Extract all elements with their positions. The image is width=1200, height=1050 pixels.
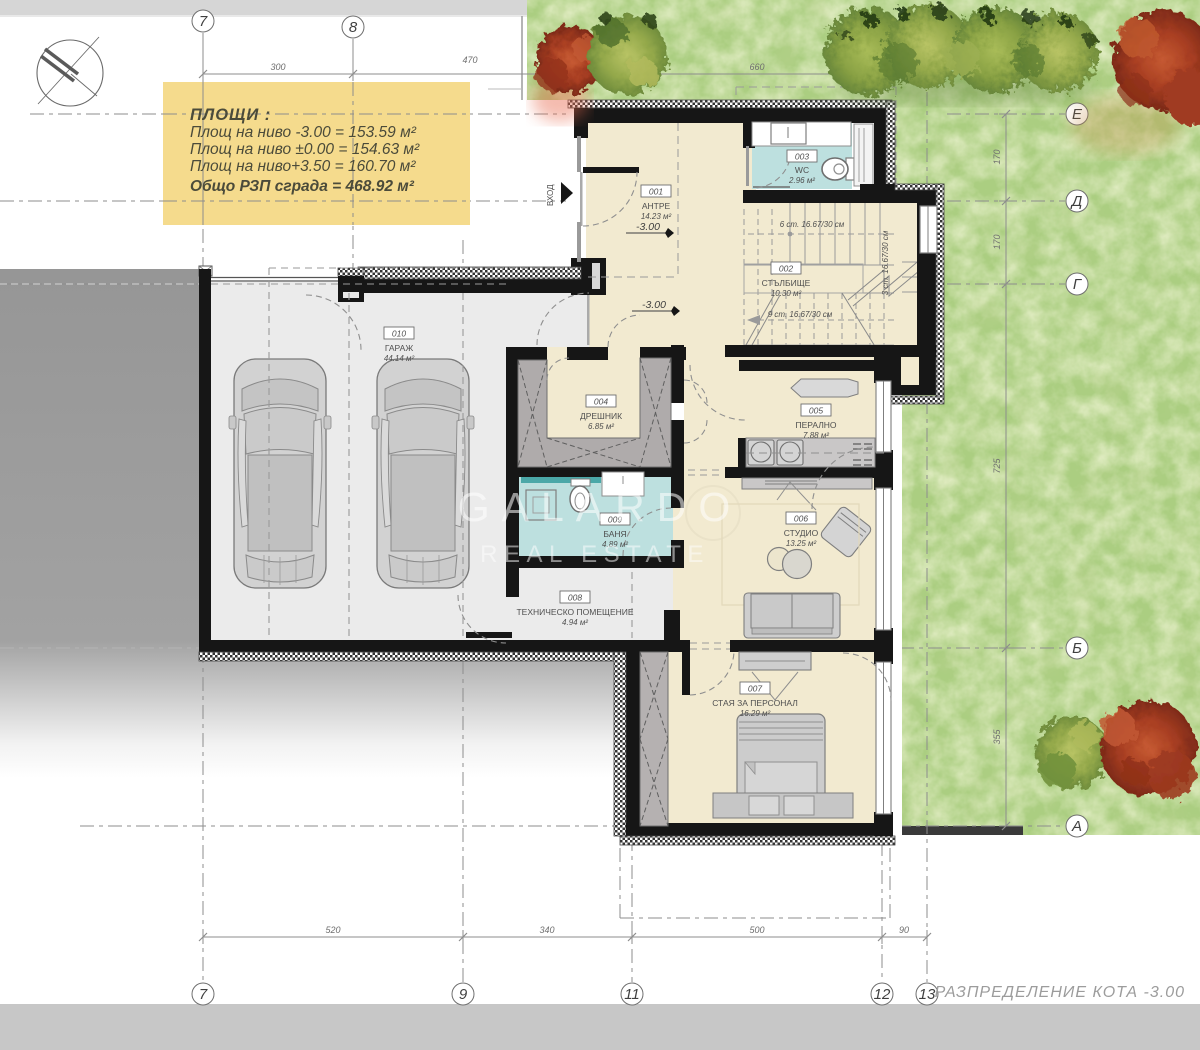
svg-text:13.25 м²: 13.25 м² <box>786 539 817 548</box>
svg-text:7: 7 <box>199 13 208 30</box>
svg-text:005: 005 <box>809 406 823 416</box>
svg-text:007: 007 <box>748 684 762 694</box>
svg-text:А: А <box>1071 818 1082 835</box>
svg-text:500: 500 <box>749 925 764 935</box>
svg-text:010: 010 <box>392 329 406 339</box>
svg-text:ТЕХНИЧЕСКО ПОМЕЩЕНИЕ: ТЕХНИЧЕСКО ПОМЕЩЕНИЕ <box>516 607 633 617</box>
svg-text:660: 660 <box>749 62 764 72</box>
svg-text:12: 12 <box>874 986 891 1003</box>
svg-text:Б: Б <box>1072 640 1082 657</box>
svg-text:ПЛОЩИ :: ПЛОЩИ : <box>190 106 271 124</box>
svg-text:13: 13 <box>919 986 936 1003</box>
svg-text:7: 7 <box>199 986 208 1003</box>
svg-text:WC: WC <box>795 165 809 175</box>
svg-text:Площ на ниво+3.50 = 160.70 м²: Площ на ниво+3.50 = 160.70 м² <box>190 158 416 175</box>
svg-text:14.23 м²: 14.23 м² <box>641 212 672 221</box>
svg-text:003: 003 <box>795 152 809 162</box>
svg-text:Площ на ниво ±0.00 = 154.63 м²: Площ на ниво ±0.00 = 154.63 м² <box>190 141 420 158</box>
svg-text:725: 725 <box>992 458 1002 474</box>
svg-text:-3.00: -3.00 <box>636 221 660 233</box>
svg-text:10.30 м²: 10.30 м² <box>771 289 802 298</box>
svg-text:300: 300 <box>270 62 285 72</box>
svg-text:3 ст. 16.67/30 см: 3 ст. 16.67/30 см <box>881 230 890 295</box>
svg-text:002: 002 <box>779 264 793 274</box>
svg-text:БАНЯ: БАНЯ <box>603 529 626 539</box>
svg-text:001: 001 <box>649 187 663 197</box>
svg-text:СТАЯ ЗА ПЕРСОНАЛ: СТАЯ ЗА ПЕРСОНАЛ <box>712 698 798 708</box>
svg-text:РАЗПРЕДЕЛЕНИЕ КОТА -3.00: РАЗПРЕДЕЛЕНИЕ КОТА -3.00 <box>935 984 1185 1001</box>
svg-text:520: 520 <box>325 925 340 935</box>
svg-text:008: 008 <box>568 593 582 603</box>
svg-text:-3.00: -3.00 <box>642 299 666 311</box>
svg-text:355: 355 <box>992 729 1002 745</box>
svg-text:СТУДИО: СТУДИО <box>784 528 819 538</box>
svg-text:ГАРАЖ: ГАРАЖ <box>385 343 413 353</box>
svg-text:470: 470 <box>462 55 477 65</box>
svg-text:REAL ESTATE: REAL ESTATE <box>480 541 710 568</box>
svg-text:2.96 м²: 2.96 м² <box>788 176 815 185</box>
svg-text:8: 8 <box>349 19 358 36</box>
svg-text:АНТРЕ: АНТРЕ <box>642 201 671 211</box>
svg-text:GALARDO: GALARDO <box>458 484 743 530</box>
svg-text:006: 006 <box>794 514 808 524</box>
svg-text:9: 9 <box>459 986 468 1003</box>
svg-text:ДРЕШНИК: ДРЕШНИК <box>580 411 622 421</box>
svg-text:ВХОД: ВХОД <box>546 184 555 206</box>
svg-text:6 ст. 16.67/30 см: 6 ст. 16.67/30 см <box>780 220 845 229</box>
svg-text:7.88 м²: 7.88 м² <box>803 431 829 440</box>
svg-text:004: 004 <box>594 397 608 407</box>
svg-text:16.29 м²: 16.29 м² <box>740 709 771 718</box>
svg-text:9 ст. 16.67/30 см: 9 ст. 16.67/30 см <box>768 310 833 319</box>
svg-text:СТЪЛБИЩЕ: СТЪЛБИЩЕ <box>762 278 811 288</box>
svg-text:340: 340 <box>539 925 554 935</box>
svg-text:Общо РЗП сграда = 468.92 м²: Общо РЗП сграда = 468.92 м² <box>190 178 415 195</box>
svg-text:6.85 м²: 6.85 м² <box>588 422 614 431</box>
svg-text:4.94 м²: 4.94 м² <box>562 618 588 627</box>
svg-text:ПЕРАЛНО: ПЕРАЛНО <box>795 420 836 430</box>
svg-text:170: 170 <box>992 234 1002 249</box>
svg-text:44.14 м²: 44.14 м² <box>384 354 415 363</box>
svg-text:90: 90 <box>899 925 909 935</box>
svg-text:Площ на ниво -3.00 = 153.59 м²: Площ на ниво -3.00 = 153.59 м² <box>190 124 417 141</box>
svg-text:170: 170 <box>992 149 1002 164</box>
svg-text:11: 11 <box>624 986 640 1003</box>
svg-text:Д: Д <box>1070 193 1083 210</box>
